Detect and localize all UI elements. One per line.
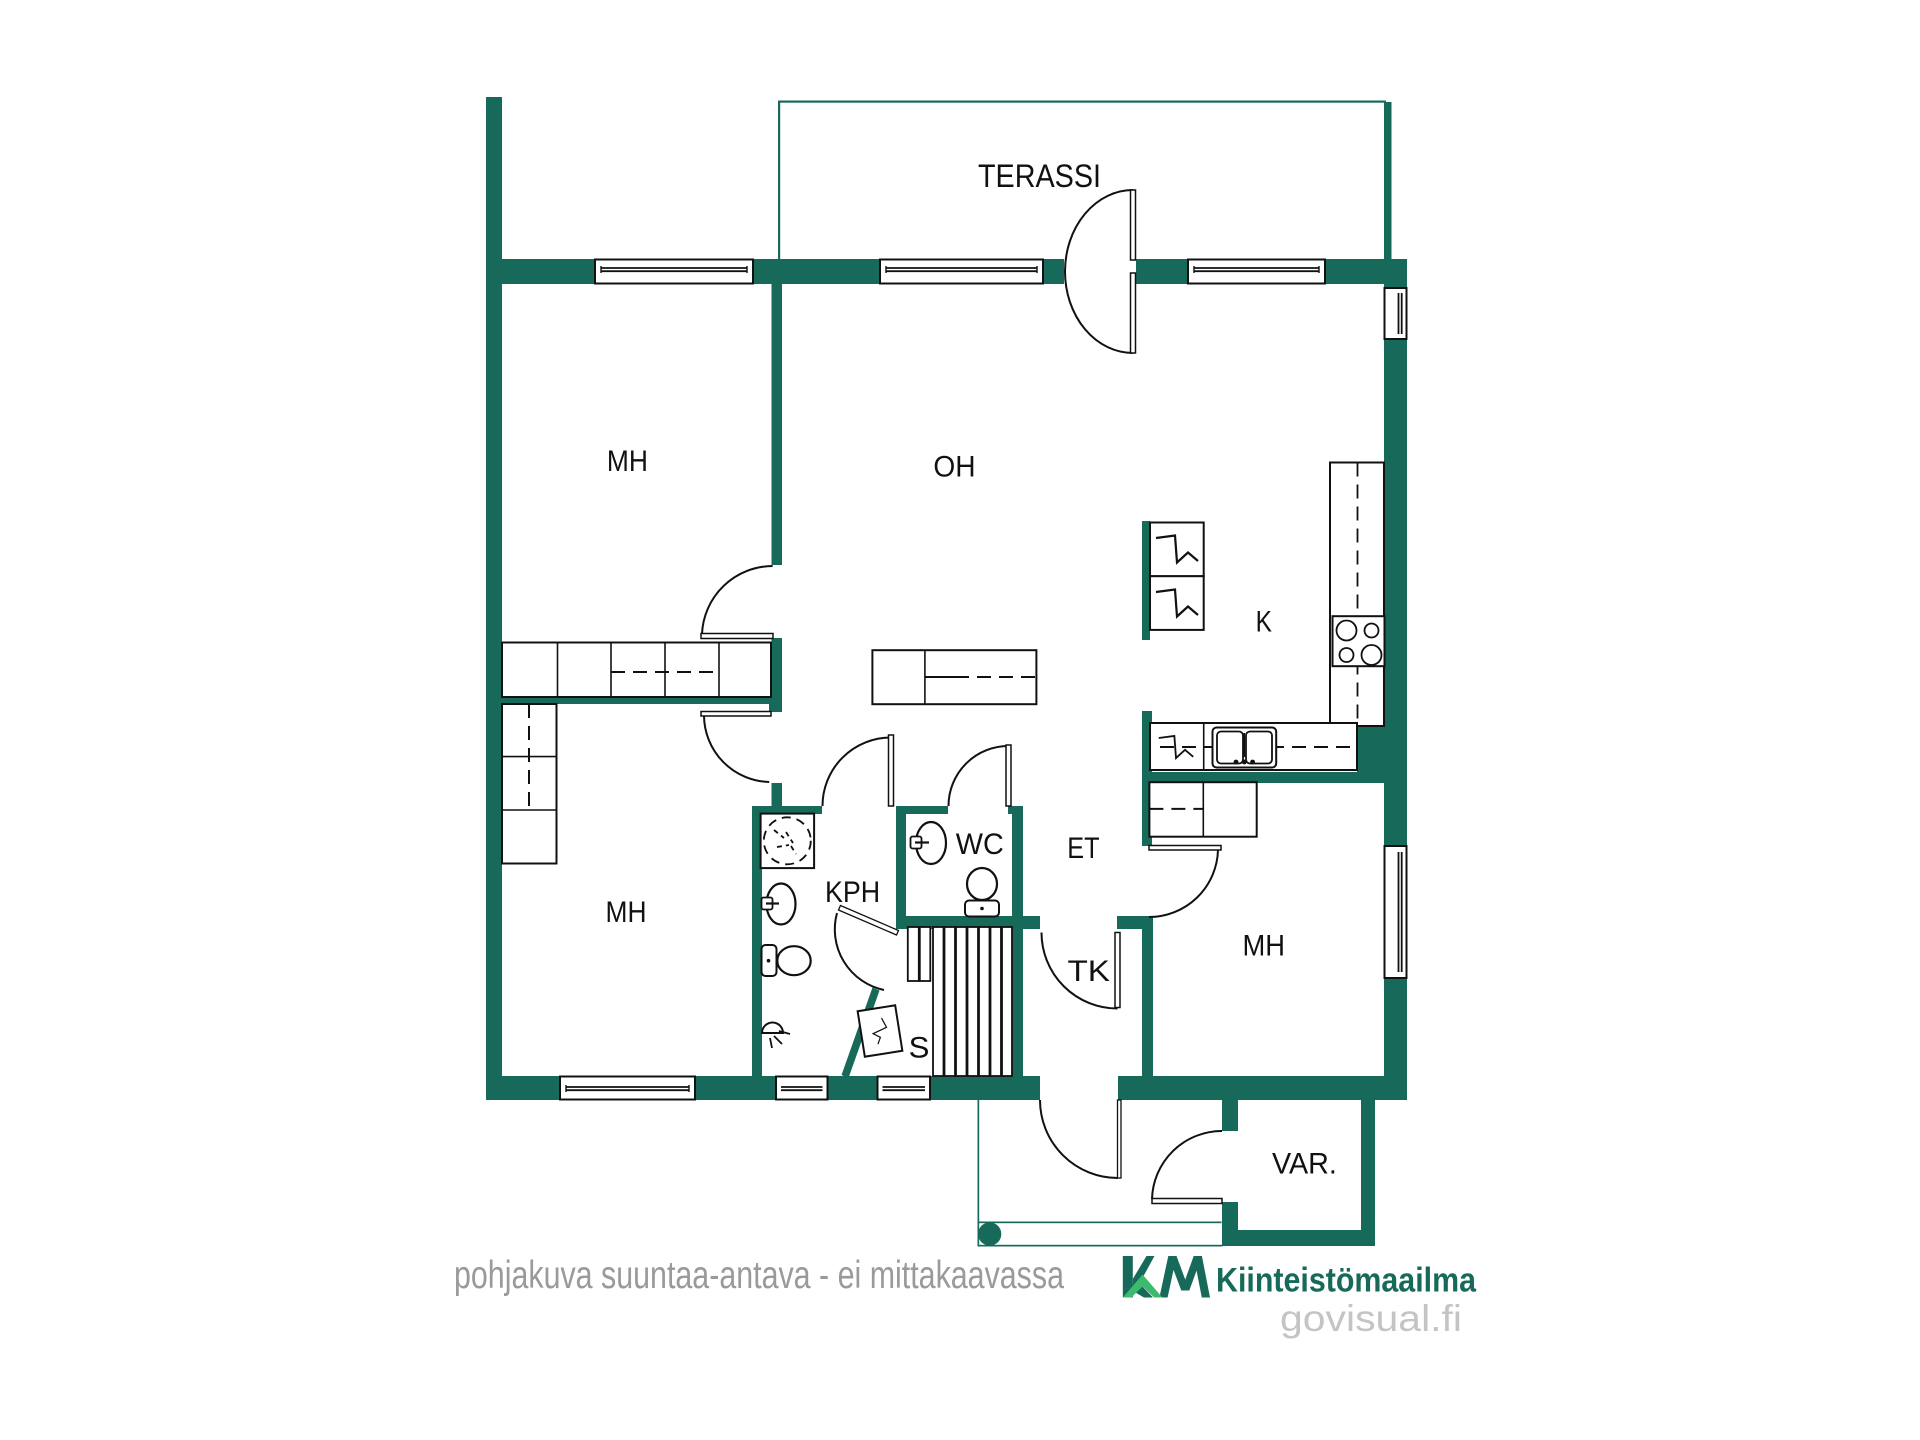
svg-text:S: S: [909, 1032, 930, 1065]
svg-text:OH: OH: [933, 451, 975, 484]
svg-text:VAR.: VAR.: [1272, 1147, 1337, 1180]
svg-text:MH: MH: [1243, 930, 1286, 963]
svg-text:MH: MH: [606, 896, 647, 929]
svg-text:K: K: [1256, 605, 1272, 638]
svg-text:MH: MH: [607, 445, 648, 478]
svg-text:govisual.fi: govisual.fi: [1280, 1298, 1462, 1339]
svg-text:TERASSI: TERASSI: [978, 158, 1101, 194]
svg-text:ET: ET: [1067, 832, 1099, 865]
svg-text:pohjakuva suuntaa-antava - ei: pohjakuva suuntaa-antava - ei mittakaava…: [454, 1254, 1064, 1297]
svg-text:TK: TK: [1068, 955, 1111, 988]
svg-text:KPH: KPH: [825, 876, 880, 909]
svg-text:WC: WC: [956, 828, 1004, 861]
svg-text:Kiinteistömaailma: Kiinteistömaailma: [1216, 1262, 1477, 1300]
